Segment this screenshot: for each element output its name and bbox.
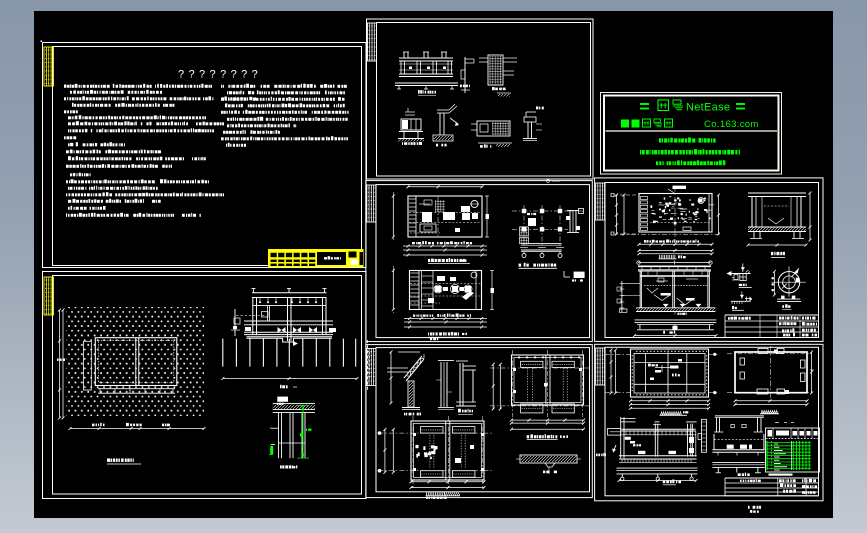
svg-text:NetEase: NetEase xyxy=(686,102,730,114)
svg-text:Co.163.com: Co.163.com xyxy=(704,119,759,130)
svg-text:????????: ???????? xyxy=(178,69,262,81)
